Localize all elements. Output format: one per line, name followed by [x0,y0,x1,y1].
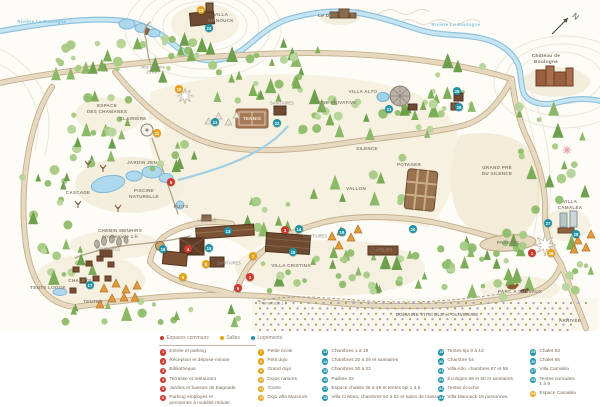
map-marker-22: 22 [273,119,281,127]
map-label-villa-camalea: VILLA CAMALÉA [558,199,583,211]
map-label-vers-la-riviere: vers la rivière 25 min. [141,65,165,76]
map-label-tentes: TENTES [83,299,103,305]
legend-item-11: 11Yourte [258,386,308,393]
map-label-domaine-viticole: DOMAINE VITICOLE et OLIVERAIE [396,312,479,318]
legend-item-label: Entrée et parking [169,349,206,355]
legend-item-label: Villa Manouck 18 personnes [447,395,507,401]
map-marker-28: 28 [572,230,580,238]
map-marker-15: 15 [205,244,213,252]
legend-key-3: Logements [251,335,282,341]
legend-item-18: 18Villa Cristina, chambres 50 à 52 et sa… [322,395,445,402]
legend-item-label: Villa Camaléa [539,367,569,373]
legend-item-label: Petit dojo [267,358,287,364]
legend-key-dot [220,336,224,340]
map-label-villa-alto: VILLA ALTO [349,89,378,95]
legend-item-number: 12 [258,395,264,401]
map-label-tennis: TENNIS [243,116,261,122]
legend-item-2: 2Réception et dépose-minute [160,358,236,365]
map-label-river-label-west: Rivière La Boulogne [17,19,66,25]
map-label-jardin-zen: JARDIN ZEN [127,160,157,166]
legend-key-label: Espaces communs [167,335,209,341]
legend-item-19: 19Tentes tipi 9 à 13 [438,349,513,356]
legend-item-20: 20Chambre 54 [438,358,513,365]
legend-item-23: 23Tentes écochic [438,386,513,393]
legend-item-24: 24Villa Manouck 18 personnes [438,395,513,402]
map-page: N 12345678910111213141516171819202122232… [0,0,600,407]
map-label-villa-cristina: VILLA CRISTINA [271,263,311,269]
map-label-sanitaires-cristina: SANITAIRES [303,233,327,238]
map-label-zone-privative: ZONE PRIVATIVE [315,100,356,106]
legend-item-label: Espace chalets 36 à 49 et tentes tipi 1 … [331,386,420,392]
legend-item-17: 17Espace chalets 36 à 49 et tentes tipi … [322,386,445,393]
map-marker-20: 20 [409,225,417,233]
map-marker-14: 14 [295,225,303,233]
legend-item-number: 24 [438,395,444,401]
map-marker-25: 25 [453,87,461,95]
legend-item-label: Tentes tipi 9 à 13 [447,349,483,355]
legend-item-number: 3 [160,368,166,374]
legend-item-number: 13 [322,349,328,355]
legend-item-number: 14 [322,358,328,364]
map-label-lingerie: LINGERIE [197,217,216,222]
map-marker-26: 26 [455,103,463,111]
legend-item-4: 4Terrasse et restaurant [160,377,236,384]
map-label-cascade: CASCADE [66,190,90,196]
legend-key-dot [251,336,255,340]
legend-item-label: Bibliothèque [169,367,195,373]
legend-item-label: Dojo villa Manouck [267,395,307,401]
legend-item-26: 26Chalet 55 [530,358,576,365]
map-label-puits: PUITS [174,204,189,210]
map-label-arrivee: ARRIVÉE [559,318,581,324]
legend-key-2: Salles [220,335,240,341]
legend-item-number: 27 [530,368,536,374]
legend-item-number: 1 [160,349,166,355]
legend-item-number: 10 [258,377,264,383]
map-marker-19: 19 [338,228,346,236]
legend-item-number: 29 [530,391,536,397]
map-marker-2: 2 [246,273,254,281]
legend-item-label: Petite école [267,349,292,355]
map-label-river-label-east: Rivière La Boulogne [431,22,480,28]
map-label-silence: SILENCE [356,146,378,152]
map-marker-12: 12 [197,6,205,14]
map-label-sanitaires-chalets: SANITAIRES [96,246,120,251]
legend-item-label: Écologes 59 et 60 et sanitaires [447,377,513,383]
legend-item-label: Tentes écochic [447,386,479,392]
legend-item-28: 28Tentes nomades 1 à 9 [530,377,576,389]
legend-item-1: 1Entrée et parking [160,349,236,356]
legend-item-label: Villa Alto, chambres 57 et 58 [447,367,508,373]
legend-item-5: 5Jardins et bassins de baignade [160,386,236,393]
legend-item-21: 21Villa Alto, chambres 57 et 58 [438,367,513,374]
legend-item-number: 22 [438,377,444,383]
legend-item-number: 4 [160,377,166,383]
map-marker-24: 24 [205,24,213,32]
map-label-clairiere: CLAIRIÈRE [119,116,146,122]
map-marker-8: 8 [202,260,210,268]
legend-key-label: Salles [226,335,240,341]
map-marker-27: 27 [544,219,552,227]
legend-item-number: 18 [322,395,328,401]
legend-item-label: Tentes nomades 1 à 9 [539,377,574,389]
legend-key-dot [160,336,164,340]
legend-item-27: 27Villa Camaléa [530,367,576,374]
map-label-parc-a-chevaux: PARC À CHEVAUX [498,289,542,295]
map-marker-18: 18 [289,248,297,256]
legend-item-label: Paillote 33 [331,377,353,383]
legend-item-label: Terrasse et restaurant [169,377,216,383]
legend-item-number: 19 [438,349,444,355]
map-label-sanitaires-centre: SANITAIRES [217,260,241,265]
map-label-promenade: Promenade 1 h [259,300,287,305]
legend-item-label: Dojos natures [267,377,297,383]
legend-item-number: 8 [258,358,264,364]
legend-item-number: 25 [530,349,536,355]
legend-item-label: Chambres 1 à 19 [331,349,368,355]
legend-item-label: Chambres 20 à 29 et sanitaires [331,358,398,364]
legend-item-number: 28 [530,377,536,383]
legend-column-1: 1Entrée et parking2Réception et dépose-m… [160,349,236,407]
legend-item-number: 20 [438,358,444,364]
legend-item-label: Yourte [267,386,281,392]
legend-item-number: 6 [160,395,166,401]
legend-item-number: 23 [438,386,444,392]
legend-item-number: 7 [258,349,264,355]
legend-item-7: 7Petite école [258,349,308,356]
legend-item-label: Jardins et bassins de baignade [169,386,235,392]
legend-key: Espaces communsSallesLogements [160,335,282,341]
map-label-piscine-naturelle: PISCINE NATURELLE [129,188,159,200]
legend-item-number: 15 [322,368,328,374]
legend-column-4: 19Tentes tipi 9 à 1320Chambre 5421Villa … [438,349,513,404]
map-label-chateau-de-boulogne: Château de Boulogne [519,54,573,66]
legend-item-13: 13Chambres 1 à 19 [322,349,445,356]
legend-item-12: 12Dojo villa Manouck [258,395,308,402]
map-label-potager: POTAGER [397,162,421,168]
legend-item-number: 11 [258,386,264,392]
map-label-espace-des-chamanes: ESPACE DES CHAMANES [87,103,127,115]
map-label-tente-lodge: TENTE LODGE [30,285,65,291]
legend-item-14: 14Chambres 20 à 29 et sanitaires [322,358,445,365]
map-marker-6: 6 [234,284,242,292]
map-label-grand-pre-du-silence: GRAND PRÉ DU SILENCE [482,165,512,177]
legend-item-16: 16Paillote 33 [322,377,445,384]
legend-item-8: 8Petit dojo [258,358,308,365]
map-label-vallon: VALLON [346,186,366,192]
legend-item-29: 29Espace Camaléa [530,391,576,398]
map-marker-17: 17 [86,281,94,289]
map-label-atelier: ATELIER [376,247,393,252]
map-marker-13: 13 [224,227,232,235]
map-marker-3: 3 [281,226,289,234]
legend-item-number: 26 [530,358,536,364]
map-label-sanitaires-tennis: SANITAIRES [270,100,294,105]
legend-item-label: Grand dojo [267,367,291,373]
map-marker-11: 11 [153,129,161,137]
map-marker-29: 29 [547,249,555,257]
legend-item-label: Chalet 55 [539,358,560,364]
legend-item-number: 17 [322,386,328,392]
map-marker-23: 23 [211,118,219,126]
legend-item-number: 21 [438,368,444,374]
map-marker-9: 9 [179,273,187,281]
legend-item-label: Chambre 54 [447,358,473,364]
map-marker-16: 16 [159,245,167,253]
legend-item-number: 16 [322,377,328,383]
legend-item-label: Parking employés et personnes à mobilité… [169,395,229,407]
legend-item-label: Chalet 53 [539,349,560,355]
legend-item-label: Espace Camaléa [539,391,576,397]
map-marker-4: 4 [184,245,192,253]
legend-key-label: Logements [257,335,282,341]
legend-item-3: 3Bibliothèque [160,367,236,374]
map-marker-1: 1 [528,249,536,257]
map-label-parking: PARKING [497,240,520,246]
legend-item-10: 10Dojos natures [258,377,308,384]
legend-item-label: Réception et dépose-minute [169,358,229,364]
map-marker-5: 5 [167,178,175,186]
legend: Espaces communsSallesLogements 1Entrée e… [0,331,600,407]
legend-item-number: 9 [258,368,264,374]
legend-item-label: Villa Cristina, chambres 50 à 52 et salo… [331,395,444,401]
legend-item-6: 6Parking employés et personnes à mobilit… [160,395,236,407]
legend-column-3: 13Chambres 1 à 1914Chambres 20 à 29 et s… [322,349,445,404]
map-marker-7: 7 [249,252,257,260]
map-marker-10: 10 [175,85,183,93]
legend-item-15: 15Chambres 30 à 32 [322,367,445,374]
map-label-villa-manouck: VILLA MANOUCK [208,12,234,24]
map-marker-21: 21 [385,105,393,113]
legend-column-2: 7Petite école8Petit dojo9Grand dojo10Doj… [258,349,308,404]
legend-item-label: Chambres 30 à 32 [331,367,370,373]
legend-divider [159,345,256,346]
legend-key-1: Espaces communs [160,335,209,341]
map-label-le-dral: Le Dral [318,14,336,20]
legend-item-22: 22Écologes 59 et 60 et sanitaires [438,377,513,384]
legend-item-number: 2 [160,358,166,364]
legend-item-9: 9Grand dojo [258,367,308,374]
map-overlay: 1234567891011121314151617181920212223242… [0,0,600,332]
legend-column-5: 25Chalet 5326Chalet 5527Villa Camaléa28T… [530,349,576,400]
legend-item-25: 25Chalet 53 [530,349,576,356]
map-label-chemin-menhirs: CHEMIN MENHIRS promenade 1 h [98,228,142,240]
legend-item-number: 5 [160,386,166,392]
